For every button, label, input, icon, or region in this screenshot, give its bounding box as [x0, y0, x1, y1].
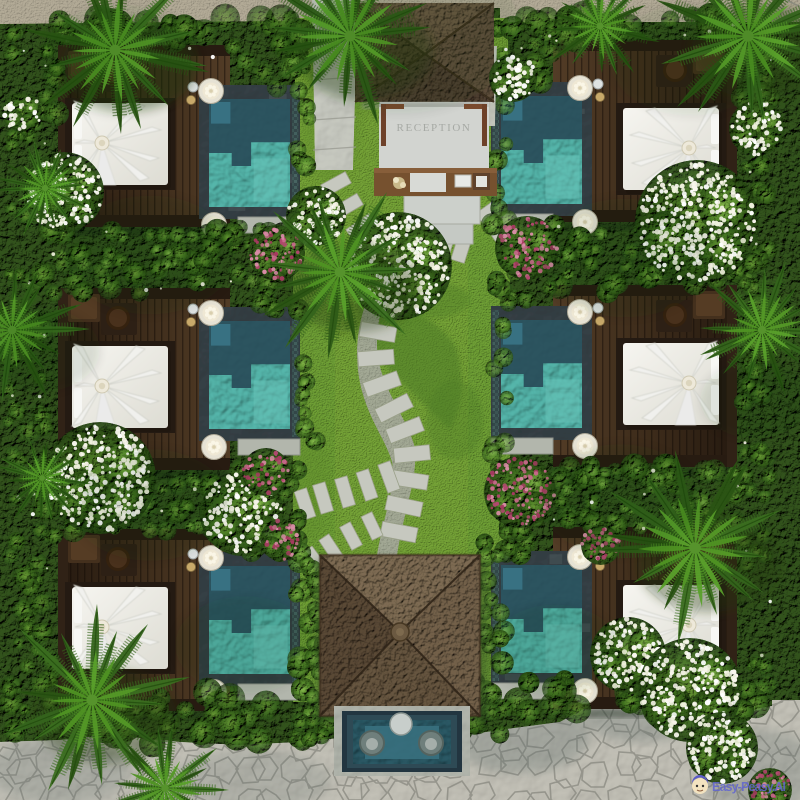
svg-text:Easy-Peasy.AI: Easy-Peasy.AI	[712, 780, 786, 794]
svg-text:RECEPTION: RECEPTION	[397, 122, 472, 134]
